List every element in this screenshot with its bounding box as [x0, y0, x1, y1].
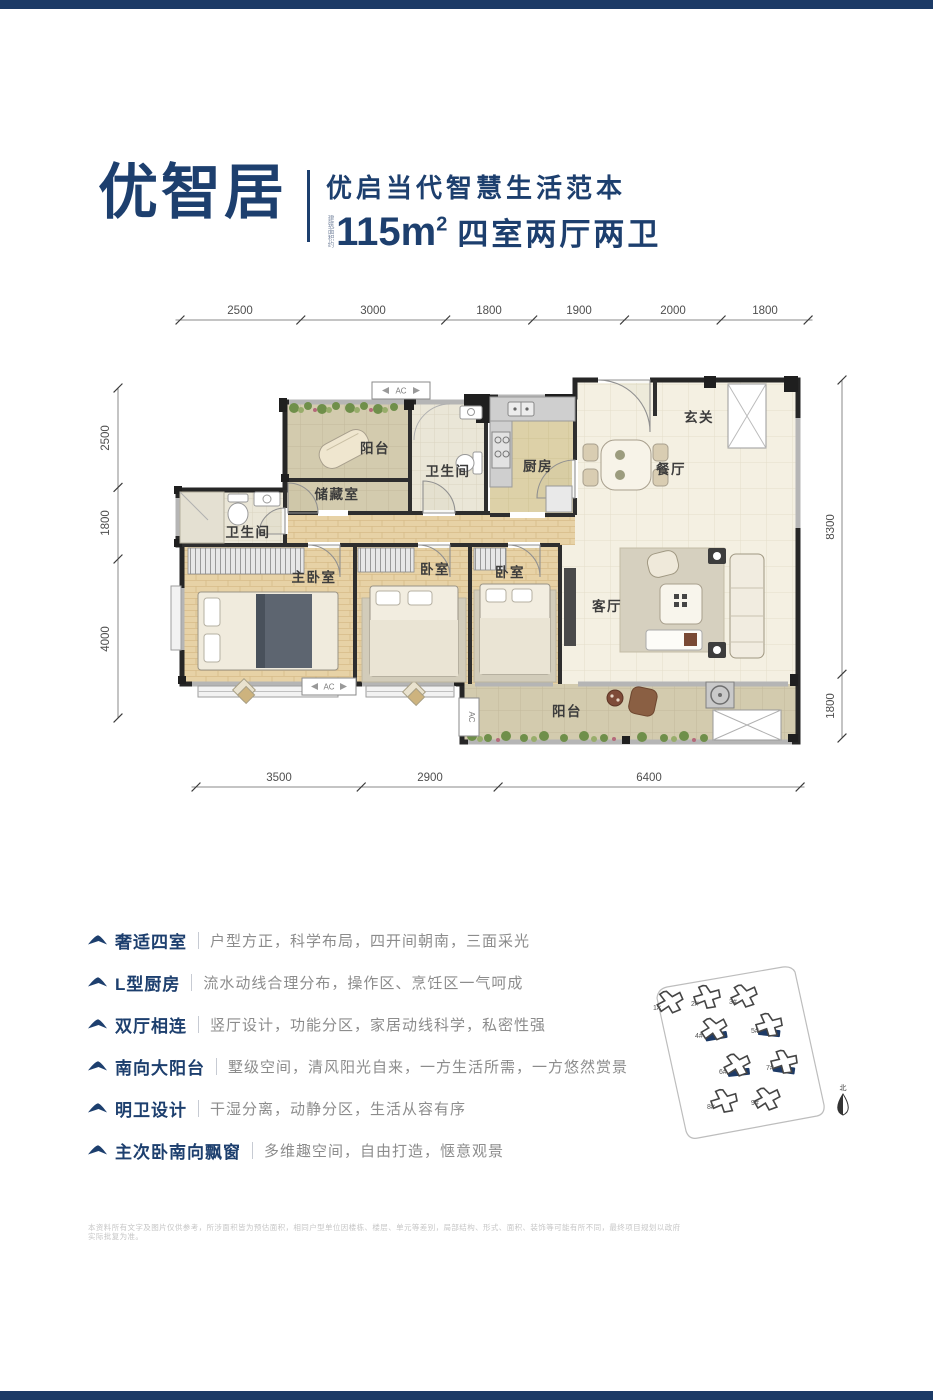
feature-desc: 墅级空间，清风阳光自来，一方生活所需，一方悠然赏景 [228, 1056, 628, 1077]
label-bedroom-right: 卧室 [495, 564, 525, 580]
svg-text:8#: 8# [707, 1104, 715, 1111]
dim-right: 8300 1800 [826, 374, 854, 746]
feature-label: L型厨房 [115, 970, 180, 995]
feature-desc: 户型方正，科学布局，四开间朝南，三面采光 [210, 930, 530, 951]
svg-text:2#: 2# [691, 1001, 699, 1008]
svg-text:2500: 2500 [100, 425, 112, 451]
svg-text:1800: 1800 [476, 305, 502, 317]
entry-cabinet [728, 384, 766, 448]
roof-swoosh-icon [88, 935, 107, 945]
roof-swoosh-icon [88, 1145, 107, 1155]
north-compass: 北 [838, 1084, 849, 1115]
label-kitchen: 厨房 [523, 458, 553, 474]
ac-label-side: AC [467, 711, 476, 722]
svg-text:1900: 1900 [566, 305, 592, 317]
label-bath-top: 卫生间 [426, 463, 471, 479]
svg-text:6#: 6# [719, 1069, 727, 1076]
feature-separator [198, 932, 199, 949]
svg-text:1#: 1# [653, 1005, 661, 1012]
roof-swoosh-icon [88, 1103, 107, 1113]
roof-swoosh-icon [88, 1019, 107, 1029]
feature-desc: 流水动线合理分布，操作区、烹饪区一气呵成 [203, 972, 523, 993]
disclaimer-text: 本资料所有文字及图片仅供参考，所涉面积皆为预估面积，相同户型单位因楼栋、楼层、单… [88, 1223, 688, 1243]
floorplan: AC AC AC 阳台 卫生间 厨房 玄关 餐厅 储藏室 卫生间 主卧室 卧室 … [168, 358, 808, 760]
ac-label-top: AC [395, 387, 406, 396]
feature-label: 明卫设计 [115, 1096, 187, 1121]
feature-desc: 干湿分离，动静分区，生活从容有序 [210, 1098, 466, 1119]
svg-text:1800: 1800 [100, 510, 112, 536]
feature-row: 奢适四室 户型方正，科学布局，四开间朝南，三面采光 [88, 928, 708, 952]
feature-row: 明卫设计 干湿分离，动静分区，生活从容有序 [88, 1096, 708, 1120]
feature-row: L型厨房 流水动线合理分布，操作区、烹饪区一气呵成 [88, 970, 708, 994]
svg-text:4#: 4# [695, 1033, 703, 1040]
svg-text:1800: 1800 [826, 693, 837, 719]
feature-label: 奢适四室 [115, 928, 187, 953]
svg-text:8300: 8300 [826, 514, 837, 540]
svg-text:1800: 1800 [752, 305, 778, 317]
master-bed [198, 592, 338, 670]
feature-row: 双厅相连 竖厅设计，功能分区，家居动线科学，私密性强 [88, 1012, 708, 1036]
bedroom-right-bed [474, 584, 556, 682]
feature-separator [198, 1016, 199, 1033]
feature-desc: 竖厅设计，功能分区，家居动线科学，私密性强 [210, 1014, 546, 1035]
plan-title: 优智居 [98, 160, 287, 226]
feature-label: 南向大阳台 [115, 1054, 205, 1079]
feature-row: 南向大阳台 墅级空间，清风阳光自来，一方生活所需，一方悠然赏景 [88, 1054, 708, 1078]
svg-text:4000: 4000 [100, 626, 112, 652]
header-right: 优启当代智慧生活范本 建筑面积约 115m2 四室两厅两卫 [326, 168, 661, 252]
svg-text:3000: 3000 [360, 305, 386, 317]
svg-text:7#: 7# [766, 1065, 774, 1072]
label-master: 主卧室 [292, 569, 337, 585]
feature-row: 主次卧南向飘窗 多维趣空间，自由打造，惬意观景 [88, 1138, 708, 1162]
svg-text:5#: 5# [751, 1028, 759, 1035]
label-bedroom-mid: 卧室 [420, 561, 450, 577]
bottom-accent-bar [0, 1391, 933, 1400]
svg-text:3500: 3500 [266, 772, 292, 784]
area-rooms: 四室两厅两卫 [457, 219, 661, 252]
dim-top: 2500 3000 1800 1900 2000 1800 [172, 300, 816, 326]
feature-desc: 多维趣空间，自由打造，惬意观景 [264, 1140, 504, 1161]
dim-bottom: 3500 2900 6400 [188, 768, 808, 794]
flyer-page: 优智居 优启当代智慧生活范本 建筑面积约 115m2 四室两厅两卫 2500 3… [0, 0, 933, 1400]
feature-label: 主次卧南向飘窗 [115, 1138, 241, 1163]
svg-text:2000: 2000 [660, 305, 686, 317]
feature-separator [191, 974, 192, 991]
feature-separator [198, 1100, 199, 1117]
svg-text:2900: 2900 [417, 772, 443, 784]
label-storage: 储藏室 [314, 486, 360, 502]
top-accent-bar [0, 0, 933, 9]
label-balcony-bottom: 阳台 [552, 703, 582, 719]
bedroom-mid-bed [362, 586, 466, 682]
label-entry: 玄关 [684, 409, 714, 425]
svg-text:2500: 2500 [227, 305, 253, 317]
feature-label: 双厅相连 [115, 1012, 187, 1037]
label-bath-left: 卫生间 [226, 524, 271, 540]
feature-list: 奢适四室 户型方正，科学布局，四开间朝南，三面采光 L型厨房 流水动线合理分布，… [88, 928, 708, 1180]
ac-label-bottom: AC [323, 683, 334, 692]
svg-text:6400: 6400 [636, 772, 662, 784]
north-label: 北 [840, 1084, 847, 1092]
header-divider [307, 170, 310, 242]
feature-separator [252, 1142, 253, 1159]
area-value: 115m2 [336, 212, 447, 252]
roof-swoosh-icon [88, 1061, 107, 1071]
label-dining: 餐厅 [655, 461, 686, 477]
svg-text:9#: 9# [751, 1100, 759, 1107]
label-balcony-top: 阳台 [360, 440, 390, 456]
area-prefix: 建筑面积约 [326, 215, 333, 248]
site-map: 1# 2# 3# 4# 5# 6# 7# 8# 9# 北 [645, 958, 870, 1148]
svg-text:3#: 3# [729, 999, 737, 1006]
feature-separator [216, 1058, 217, 1075]
area-line: 建筑面积约 115m2 四室两厅两卫 [326, 212, 661, 252]
label-living: 客厅 [591, 598, 622, 614]
plan-slogan: 优启当代智慧生活范本 [326, 168, 661, 205]
dim-left: 2500 1800 4000 [98, 382, 126, 724]
roof-swoosh-icon [88, 977, 107, 987]
